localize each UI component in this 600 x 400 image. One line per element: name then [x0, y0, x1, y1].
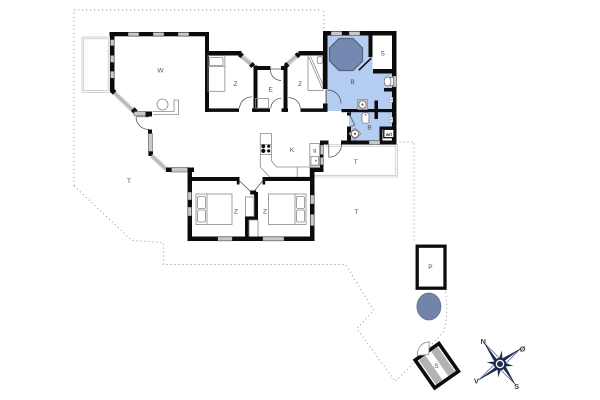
svg-text:E: E — [269, 86, 274, 93]
svg-text:N: N — [480, 337, 485, 346]
svg-text:W: W — [157, 67, 164, 74]
svg-text:T: T — [127, 178, 131, 185]
svg-text:B: B — [367, 124, 371, 131]
svg-text:g: g — [313, 148, 316, 154]
svg-text:V: V — [474, 377, 479, 386]
svg-text:K: K — [290, 147, 295, 154]
svg-text:Z: Z — [234, 81, 238, 88]
svg-text:Ø: Ø — [520, 344, 526, 353]
svg-text:Z: Z — [234, 208, 238, 215]
svg-text:B: B — [350, 79, 354, 86]
svg-text:T: T — [355, 209, 359, 216]
svg-text:P: P — [428, 264, 432, 271]
svg-text:Z: Z — [263, 208, 267, 215]
svg-text:S: S — [514, 382, 519, 391]
svg-text:Z: Z — [298, 81, 302, 88]
svg-text:S: S — [381, 51, 386, 58]
svg-text:T: T — [354, 159, 358, 166]
svg-text:w/t: w/t — [385, 132, 393, 137]
svg-text:S: S — [434, 363, 439, 370]
